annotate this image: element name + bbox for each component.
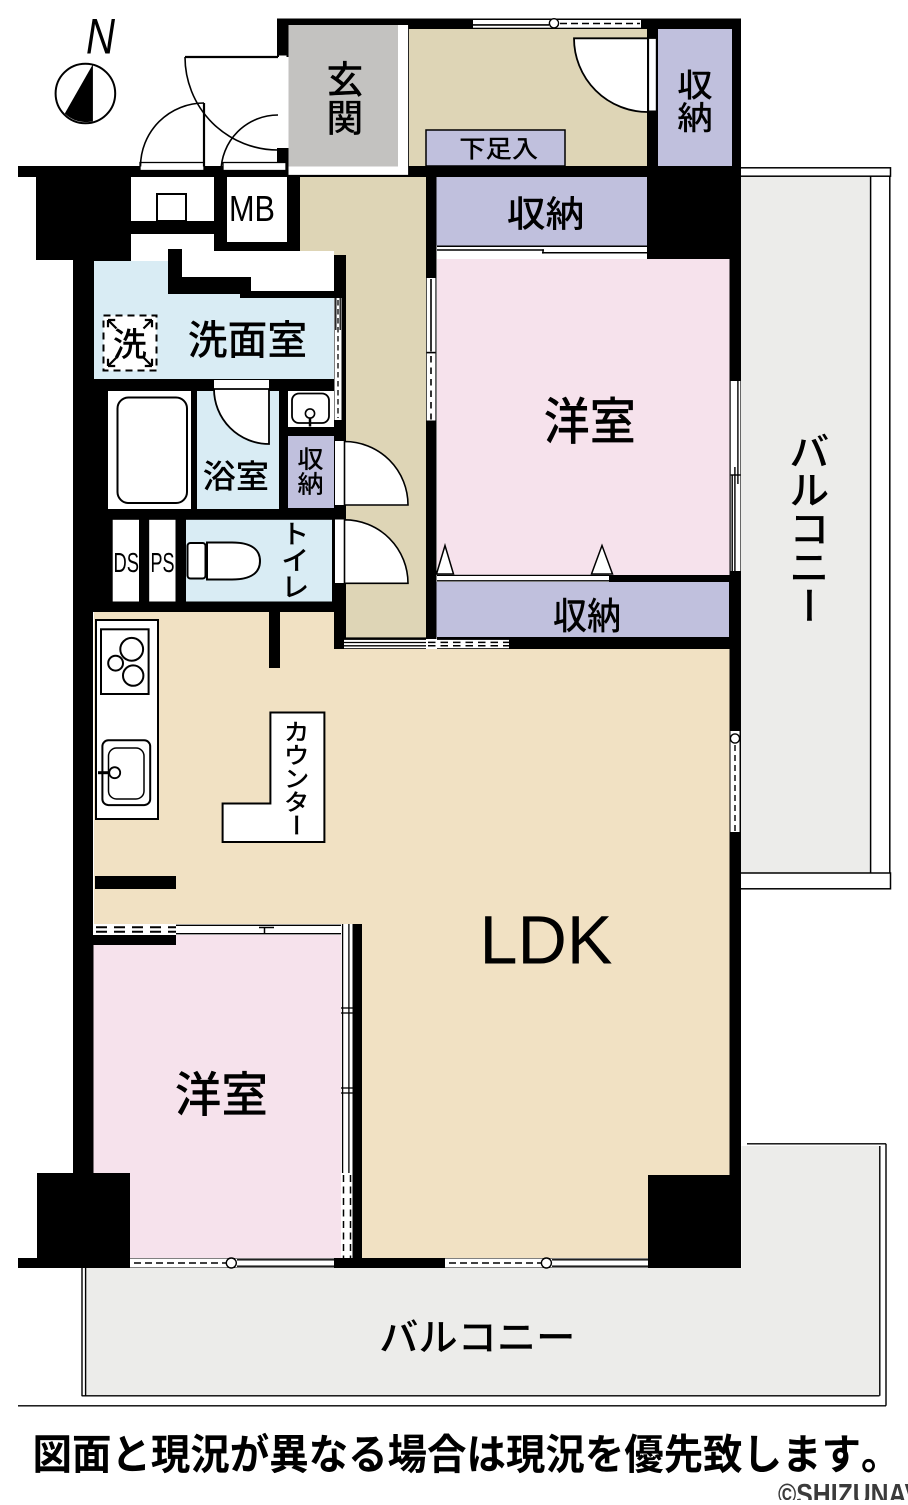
svg-text:MB: MB bbox=[229, 188, 275, 229]
svg-text:DS: DS bbox=[114, 547, 140, 578]
svg-text:©SHIZUNAVI: ©SHIZUNAVI bbox=[778, 1479, 908, 1501]
svg-text:LDK: LDK bbox=[480, 901, 613, 978]
svg-text:PS: PS bbox=[151, 547, 175, 578]
svg-text:N: N bbox=[86, 9, 116, 65]
